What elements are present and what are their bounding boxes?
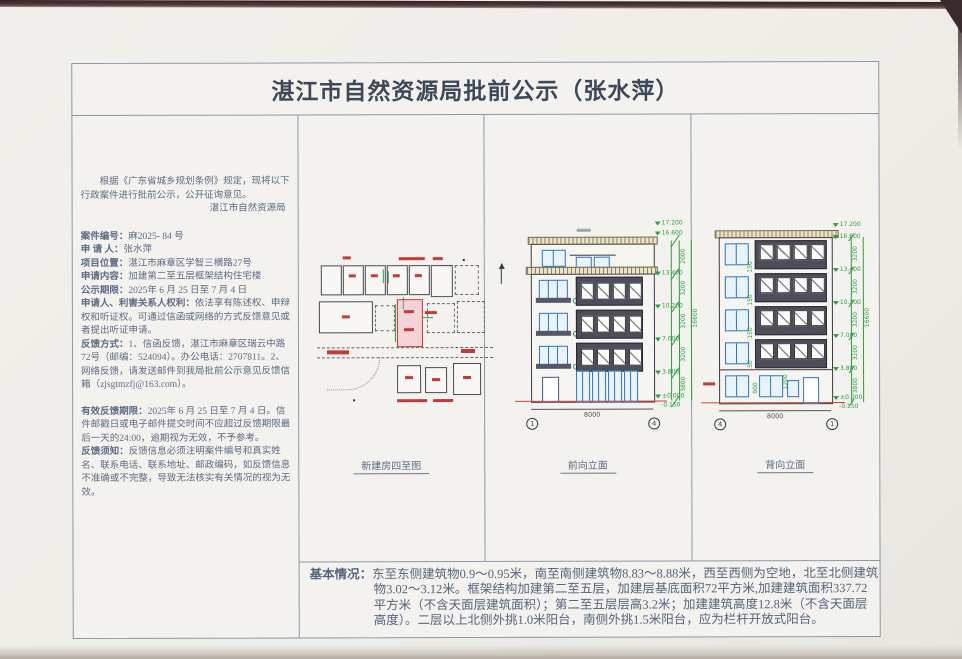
louver-window <box>760 244 774 260</box>
floor-dim: 2000 <box>681 248 687 263</box>
north-arrow-icon <box>499 263 505 284</box>
window-mullion <box>736 343 737 363</box>
window-mullion <box>548 281 549 299</box>
door-mullion <box>582 372 583 402</box>
back-elevation-drawing: 150 150 150 <box>713 212 880 430</box>
level-value: ±0.000 <box>662 392 684 399</box>
window <box>725 243 749 265</box>
field-label: 有效反馈期限： <box>81 406 148 416</box>
window-mullion <box>736 310 737 330</box>
field-feedback-deadline: 有效反馈期限：2025年 6 月 25 日至 7 月 4 日。信件邮戳日或电子邮… <box>81 405 292 446</box>
louver-window <box>811 343 825 359</box>
level-triangle-icon <box>655 370 661 374</box>
shop-door-panel <box>608 371 622 403</box>
notice-text-column: 根据《广东省城乡规划条例》规定，现将以下行政案件进行批前公示，公开征询意见。 湛… <box>81 175 293 500</box>
plan-building-dashed <box>455 265 479 295</box>
field-label: 申请人、利害关系人权利： <box>81 299 195 309</box>
roof-note <box>577 229 591 232</box>
page-title: 湛江市自然资源局批前公示（张水萍） <box>271 71 679 106</box>
column-divider <box>297 114 299 637</box>
louver-window <box>794 277 808 293</box>
plan-red-label <box>397 399 427 402</box>
level-marker: 13.400 <box>833 267 861 273</box>
level-triangle-icon <box>833 367 839 371</box>
louver-window <box>629 283 642 300</box>
floor-row <box>531 274 653 307</box>
field-feedback-method: 反馈方式：1、信函反馈，湛江市麻章区瑞云中路72号（邮编：524094）。办公电… <box>81 338 292 393</box>
plan-red-label <box>404 328 414 331</box>
level-triangle-icon <box>833 268 839 272</box>
field-content: 申请内容：加建第二至五层框架结构住宅楼 <box>81 270 292 284</box>
balcony-rail <box>536 364 571 369</box>
floor-dim: 3200 <box>853 312 859 327</box>
field-label: 公示期限： <box>81 285 129 295</box>
level-triangle-icon <box>833 334 839 338</box>
plan-red-label <box>463 376 471 379</box>
field-feedback-notes: 反馈须知：反馈信息必须注明案件编号和真实姓名、联系电话、联系地址、邮政编码，如反… <box>81 445 292 500</box>
plan-building <box>431 265 453 297</box>
grid-bubble: 1 <box>526 418 538 430</box>
plan-building <box>397 365 421 393</box>
scan-top-edge <box>0 0 962 9</box>
louver-window <box>777 343 791 359</box>
louver-window <box>597 349 610 366</box>
roof-railing <box>570 255 616 256</box>
basic-info-label: 基本情况： <box>310 567 373 581</box>
door-mullion <box>614 372 615 402</box>
floor-row <box>531 307 653 340</box>
level-value: 17.200 <box>840 221 861 228</box>
grid-bubble: 4 <box>714 418 726 430</box>
level-marker: 17.200 <box>833 222 861 228</box>
floor-row: 150 <box>719 336 831 369</box>
scanned-page: 湛江市自然资源局批前公示（张水萍） 根据《广东省城乡规划条例》规定，现将以下行政… <box>0 0 962 659</box>
field-label: 反馈须知： <box>81 447 129 457</box>
window-mullion <box>557 281 558 299</box>
window <box>725 276 749 298</box>
plan-red-label <box>432 378 440 381</box>
plan-boundary-arc <box>327 357 380 390</box>
window-mullion <box>548 314 549 332</box>
window-mullion <box>557 314 558 332</box>
plan-red-label <box>399 257 425 260</box>
level-triangle-icon <box>655 337 661 341</box>
level-triangle-icon <box>833 396 839 400</box>
louver-window <box>777 310 791 326</box>
stair-bulkhead <box>531 244 655 269</box>
louver-window <box>613 283 626 300</box>
ground-dim: 1200 <box>783 374 789 389</box>
floor-dim: 3200 <box>853 279 859 294</box>
floor-row: 150 <box>719 237 831 270</box>
window-mullion <box>736 376 737 396</box>
louver-window <box>629 349 642 366</box>
plan-red-label <box>393 274 400 277</box>
field-rights: 申请人、利害关系人权利：依法享有陈述权、申辩权和听证权。可通过信函或网络的方式反… <box>81 297 292 338</box>
floor-dim: 3800 <box>853 378 859 393</box>
window-panel <box>576 277 643 306</box>
door-mullion <box>630 372 631 402</box>
window-mullion <box>736 277 737 297</box>
plan-red-label <box>405 376 413 379</box>
plan-red-label <box>342 315 350 318</box>
level-triangle-icon <box>655 304 661 308</box>
window-panel <box>755 273 827 302</box>
notice-document: 湛江市自然资源局批前公示（张水萍） 根据《广东省城乡规划条例》规定，现将以下行政… <box>71 61 881 639</box>
width-dim: 8000 <box>719 412 831 420</box>
level-marker: 17.200 <box>655 220 683 226</box>
level-triangle-icon <box>655 394 661 398</box>
field-label: 反馈方式： <box>81 339 129 349</box>
level-marker: 16.600 <box>833 234 861 240</box>
window-mullion <box>770 376 771 396</box>
front-elevation-drawing: 8000 1 4 17.200 16.600 13.400 10.200 7.0… <box>519 212 702 430</box>
plan-building <box>409 265 430 295</box>
level-triangle-icon <box>833 235 839 239</box>
floor-row: 150 <box>719 270 831 303</box>
floor-dim: 3200 <box>681 346 687 361</box>
level-triangle-icon <box>655 271 661 275</box>
plan-green-dim <box>395 304 396 342</box>
louver-window <box>777 277 791 293</box>
shop-door-panel <box>576 371 590 403</box>
width-dim: 8000 <box>531 411 653 419</box>
field-value: 麻2025- 84 号 <box>128 231 183 241</box>
door-mullion <box>598 372 599 402</box>
plan-dot <box>463 259 465 261</box>
louver-window <box>597 283 610 300</box>
field-label: 项目位置： <box>81 258 129 268</box>
field-label: 申请内容： <box>81 272 129 282</box>
plan-red-label <box>404 310 414 313</box>
site-plan-drawing <box>313 253 523 409</box>
window-panel <box>576 343 643 372</box>
grid-bubble: 1 <box>826 418 838 430</box>
louver-window <box>613 349 626 366</box>
basic-info-section: 基本情况：东至东侧建筑物0.9～0.95米，南至南侧建筑物8.83～8.88米，… <box>300 561 885 638</box>
caption-text: 前向立面 <box>560 461 616 474</box>
plan-red-label <box>349 274 356 277</box>
plan-dot <box>353 399 355 401</box>
caption-text: 新建房四至图 <box>353 461 429 474</box>
title-row: 湛江市自然资源局批前公示（张水萍） <box>72 62 878 116</box>
plan-red-label <box>343 256 351 259</box>
scan-bottom-edge <box>0 645 962 659</box>
louver-window <box>794 244 808 260</box>
plan-building <box>425 367 447 393</box>
back-door <box>803 377 819 404</box>
louver-window <box>794 343 808 359</box>
plan-green-dim <box>388 271 389 283</box>
plan-green-dim <box>383 269 384 283</box>
floor-dim: 3200 <box>853 345 859 360</box>
louver-window <box>581 316 594 333</box>
bulkhead-window <box>542 250 566 267</box>
window <box>725 375 749 397</box>
plan-red-label <box>433 399 453 402</box>
north-arrow-shaft <box>501 269 502 284</box>
window-mullion <box>557 347 558 365</box>
louver-window <box>760 310 774 326</box>
floor-dim: 3200 <box>681 280 687 295</box>
plan-red-label <box>415 274 422 277</box>
floor-row: 150 <box>719 303 831 336</box>
floor-dim: 3200 <box>853 246 859 261</box>
caption-text: 背向立面 <box>757 460 813 473</box>
plan-red-label <box>371 274 378 277</box>
louver-window <box>581 283 594 300</box>
field-applicant: 申 请 人：张水萍 <box>81 243 292 257</box>
field-period: 公示期限：2025年 6 月 25 日至 7 月 4 日 <box>81 284 292 298</box>
window <box>725 342 749 364</box>
basic-info-paragraph: 基本情况：东至东侧建筑物0.9～0.95米，南至南侧建筑物8.83～8.88米，… <box>310 566 880 629</box>
shop-door-panel <box>624 371 638 403</box>
field-value: 加建第二至五层框架结构住宅楼 <box>128 272 261 282</box>
level-marker: ±0.000 <box>833 395 862 401</box>
basic-info-text: 东至东侧建筑物0.9～0.95米，南至南侧建筑物8.83～8.88米，西至西侧为… <box>372 566 878 627</box>
front-elevation-caption: 前向立面 <box>484 456 691 472</box>
window <box>725 309 749 331</box>
field-label: 案件编号： <box>81 231 129 241</box>
window-panel <box>576 310 643 339</box>
louver-window <box>811 310 825 326</box>
louver-window <box>613 316 626 333</box>
ground-dim: 900 <box>753 382 759 393</box>
field-case-number: 案件编号：麻2025- 84 号 <box>81 230 292 244</box>
shop-door-panel <box>592 371 606 403</box>
plan-road-label <box>327 350 349 354</box>
window-mullion <box>548 347 549 365</box>
louver-window <box>777 244 791 260</box>
plan-red-label <box>433 257 443 260</box>
case-fields: 案件编号：麻2025- 84 号 申 请 人：张水萍 项目位置：湛江市麻章区学智… <box>81 230 293 500</box>
field-value: 2025年 6 月 25 日至 7 月 4 日 <box>128 285 247 295</box>
plan-parcel-dashed <box>375 305 395 331</box>
louver-window <box>811 277 825 293</box>
louver-window <box>811 244 825 260</box>
plan-parcel-dashed <box>427 303 455 333</box>
louver-window <box>629 316 642 333</box>
plan-building <box>343 265 364 295</box>
field-location: 项目位置：湛江市麻章区学智三横路27号 <box>81 257 292 271</box>
louver-window <box>597 316 610 333</box>
level-triangle-icon <box>655 231 661 235</box>
agency-signature: 湛江市自然资源局 <box>81 202 292 216</box>
level-triangle-icon <box>833 301 839 305</box>
plan-parcel-dashed <box>457 301 485 333</box>
balcony-rail <box>536 298 571 303</box>
overall-dim: 16600 <box>865 308 871 327</box>
floor-row <box>531 340 653 373</box>
field-label: 申 请 人： <box>81 245 124 255</box>
level-value: 17.200 <box>662 219 683 226</box>
site-plan-caption: 新建房四至图 <box>298 457 484 472</box>
back-elevation-caption: 背向立面 <box>691 456 879 471</box>
window-panel <box>755 306 827 335</box>
level-triangle-icon <box>833 223 839 227</box>
plan-subject-parcel <box>397 299 423 347</box>
overall-dim: 16600 <box>693 308 699 327</box>
plan-building <box>453 363 481 395</box>
window-panel <box>755 339 827 368</box>
window-mullion <box>553 251 554 266</box>
floor-dim: 3800 <box>681 376 687 391</box>
louver-window <box>794 310 808 326</box>
field-value: 张水萍 <box>123 245 152 255</box>
field-value: 湛江市麻章区学智三横路27号 <box>128 258 252 268</box>
window <box>759 375 783 397</box>
red-annotation <box>703 382 715 385</box>
level-triangle-icon <box>655 221 661 225</box>
floor-dim: 3200 <box>681 313 687 328</box>
level-marker: 10.200 <box>833 300 861 306</box>
plan-building <box>321 265 342 295</box>
entry-door <box>542 377 559 403</box>
window-mullion <box>736 244 737 264</box>
grid-bubble: 4 <box>648 418 660 430</box>
louver-window <box>760 277 774 293</box>
louver-window <box>760 343 774 359</box>
scan-right-edge <box>958 0 962 150</box>
balcony-rail <box>536 331 571 336</box>
window-panel <box>755 240 827 269</box>
intro-paragraph: 根据《广东省城乡规划条例》规定，现将以下行政案件进行批前公示，公开征询意见。 <box>81 175 292 203</box>
louver-window <box>581 349 594 366</box>
plan-road-label <box>461 349 475 353</box>
plan-building <box>387 265 408 295</box>
plan-building <box>319 301 373 333</box>
